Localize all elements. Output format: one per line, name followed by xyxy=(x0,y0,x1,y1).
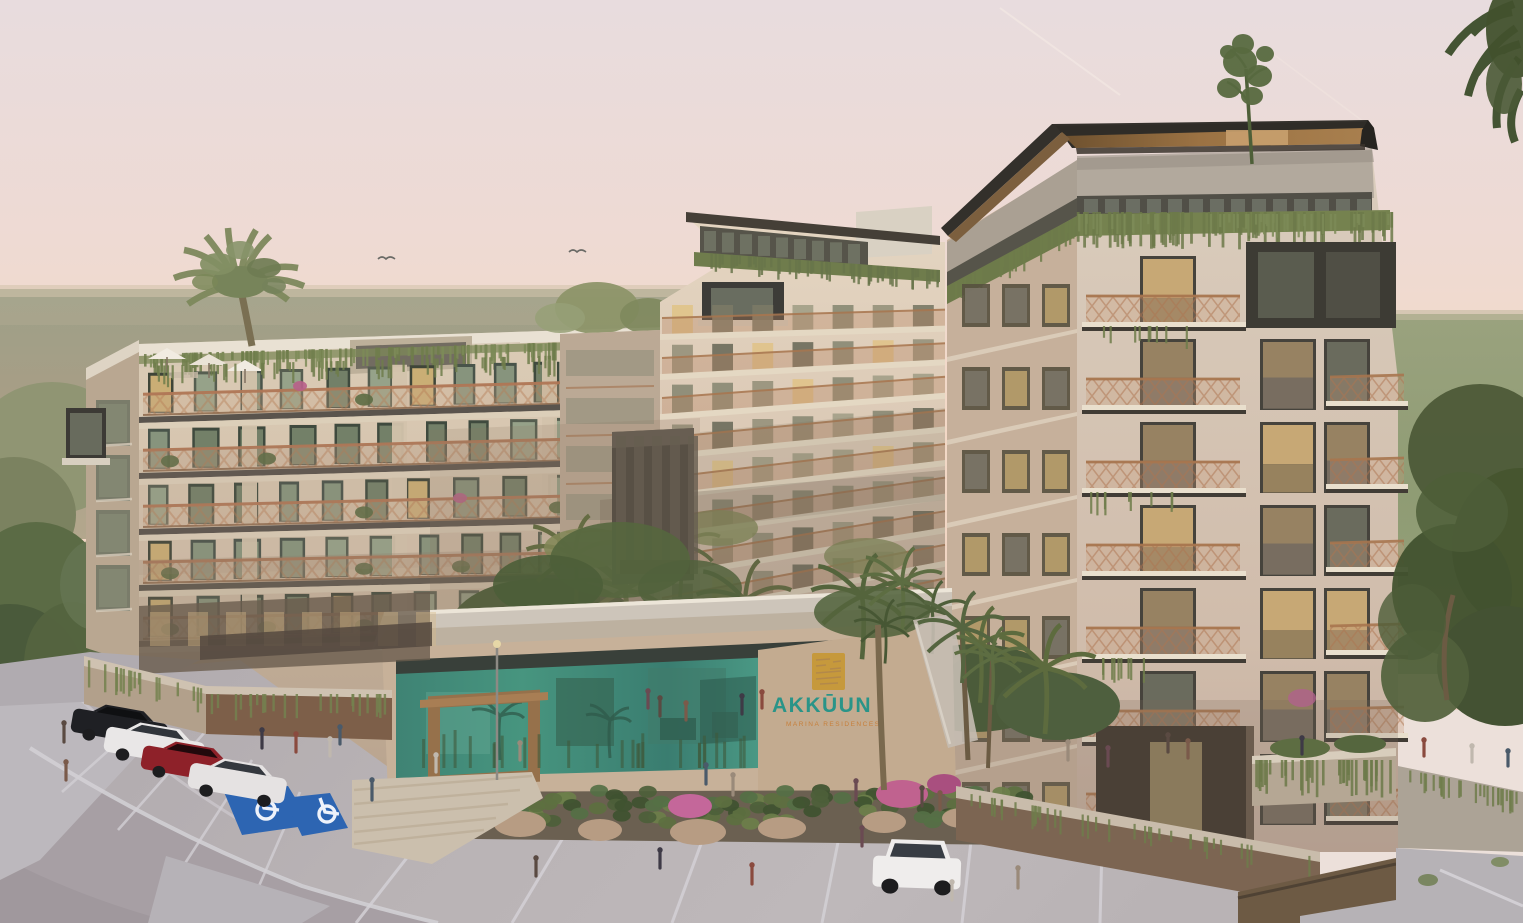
svg-text:AKKŪUN: AKKŪUN xyxy=(772,694,872,717)
svg-text:MARINA RESIDENCES: MARINA RESIDENCES xyxy=(786,721,881,728)
